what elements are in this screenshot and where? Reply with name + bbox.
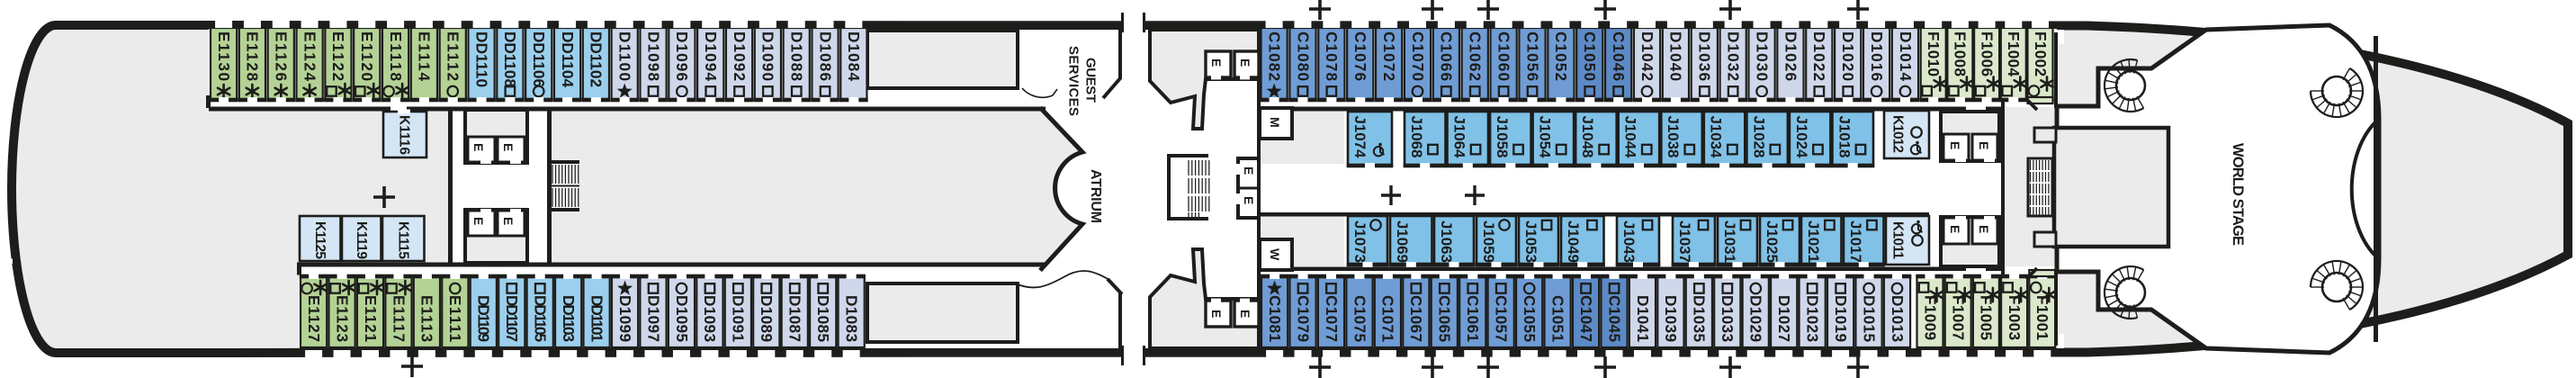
svg-text:D1023: D1023 (1803, 295, 1821, 342)
svg-text:D1087: D1087 (786, 295, 804, 342)
svg-text:C1062: C1062 (1467, 31, 1485, 81)
svg-text:D1039: D1039 (1662, 295, 1680, 342)
svg-text:E: E (1238, 58, 1252, 67)
svg-text:J1031: J1031 (1721, 220, 1738, 263)
svg-text:D1030: D1030 (1753, 31, 1771, 81)
svg-text:E1117: E1117 (390, 295, 408, 342)
svg-text:E1126: E1126 (273, 31, 291, 81)
svg-text:J1049: J1049 (1565, 220, 1582, 263)
svg-text:C1060: C1060 (1494, 31, 1512, 81)
svg-text:D1100: D1100 (616, 31, 634, 81)
svg-text:D1090: D1090 (759, 31, 777, 81)
svg-text:E1111: E1111 (446, 295, 464, 342)
svg-text:E: E (501, 217, 516, 225)
svg-text:DD1108: DD1108 (501, 31, 519, 87)
svg-text:E1121: E1121 (362, 295, 380, 342)
svg-text:DD1101: DD1101 (588, 295, 606, 342)
svg-text:C1066: C1066 (1438, 31, 1456, 81)
svg-text:E: E (1242, 166, 1256, 175)
svg-text:J1063: J1063 (1438, 220, 1455, 263)
svg-text:J1037: J1037 (1676, 220, 1693, 263)
svg-text:J1064: J1064 (1450, 116, 1468, 159)
svg-text:J1034: J1034 (1708, 116, 1725, 159)
svg-text:J1017: J1017 (1847, 220, 1864, 263)
svg-text:C1055: C1055 (1521, 295, 1539, 342)
svg-text:E: E (471, 143, 486, 151)
svg-text:E1114: E1114 (416, 31, 434, 81)
svg-text:DD1103: DD1103 (560, 295, 578, 342)
svg-text:E1124: E1124 (301, 31, 319, 81)
svg-text:E: E (1209, 310, 1224, 318)
svg-text:D1091: D1091 (730, 295, 748, 342)
svg-text:D1033: D1033 (1719, 295, 1737, 342)
svg-text:DD1106: DD1106 (530, 31, 548, 87)
svg-text:D1083: D1083 (842, 295, 860, 342)
svg-text:K1119: K1119 (354, 221, 369, 259)
svg-text:C1077: C1077 (1323, 295, 1341, 342)
svg-text:K1125: K1125 (312, 221, 328, 259)
svg-text:J1021: J1021 (1805, 220, 1822, 263)
svg-text:F1002: F1002 (2032, 31, 2050, 76)
svg-text:E1120: E1120 (358, 31, 376, 81)
svg-text:C1076: C1076 (1351, 31, 1369, 81)
svg-text:D1086: D1086 (816, 31, 834, 81)
svg-text:D1013: D1013 (1889, 295, 1907, 342)
svg-text:W: W (1268, 248, 1282, 261)
svg-text:D1096: D1096 (673, 31, 691, 81)
svg-text:C1082: C1082 (1265, 31, 1283, 81)
svg-text:D1095: D1095 (673, 295, 691, 342)
svg-text:E: E (1209, 58, 1224, 67)
svg-text:D1084: D1084 (845, 31, 863, 81)
svg-text:E1128: E1128 (244, 31, 262, 81)
svg-text:DD1105: DD1105 (532, 295, 550, 342)
svg-text:C1056: C1056 (1523, 31, 1541, 81)
svg-text:M: M (1268, 117, 1282, 128)
svg-text:E: E (1242, 196, 1256, 204)
svg-text:C1081: C1081 (1266, 295, 1284, 342)
svg-text:E1127: E1127 (305, 295, 323, 342)
svg-text:F1006: F1006 (1978, 31, 1996, 76)
svg-text:K1116: K1116 (396, 115, 411, 155)
svg-text:SERVICES: SERVICES (1066, 46, 1082, 116)
svg-text:D1027: D1027 (1775, 295, 1793, 342)
svg-text:E: E (1238, 310, 1252, 318)
svg-text:D1032: D1032 (1724, 31, 1742, 81)
svg-text:J1025: J1025 (1764, 220, 1781, 263)
svg-text:DD1104: DD1104 (559, 31, 577, 87)
svg-text:C1057: C1057 (1493, 295, 1511, 342)
svg-text:J1074: J1074 (1351, 116, 1369, 159)
svg-text:J1069: J1069 (1394, 220, 1411, 263)
svg-text:D1089: D1089 (758, 295, 776, 342)
svg-text:K1012: K1012 (1889, 115, 1905, 153)
svg-text:J1043: J1043 (1620, 220, 1638, 263)
svg-text:J1059: J1059 (1480, 220, 1497, 263)
svg-text:D1093: D1093 (701, 295, 719, 342)
svg-text:E1118: E1118 (387, 31, 405, 81)
svg-text:K1011: K1011 (1889, 221, 1905, 259)
svg-text:J1024: J1024 (1793, 116, 1810, 159)
svg-text:F1008: F1008 (1952, 31, 1970, 76)
svg-text:D1097: D1097 (644, 295, 662, 342)
svg-text:D1040: D1040 (1667, 31, 1685, 81)
svg-text:J1048: J1048 (1579, 116, 1596, 158)
svg-text:D1019: D1019 (1832, 295, 1850, 342)
svg-text:C1046: C1046 (1610, 31, 1628, 81)
svg-text:E1123: E1123 (333, 295, 351, 342)
svg-text:D1035: D1035 (1691, 295, 1709, 342)
svg-text:DD1109: DD1109 (475, 295, 493, 342)
svg-text:C1080: C1080 (1294, 31, 1312, 81)
svg-text:C1078: C1078 (1323, 31, 1341, 81)
svg-text:D1036: D1036 (1696, 31, 1714, 81)
svg-text:D1098: D1098 (644, 31, 662, 81)
svg-text:WORLD STAGE: WORLD STAGE (2230, 143, 2246, 246)
svg-text:J1038: J1038 (1665, 116, 1682, 158)
svg-text:C1079: C1079 (1294, 295, 1312, 342)
svg-text:D1041: D1041 (1634, 295, 1652, 342)
svg-text:E1130: E1130 (215, 31, 233, 81)
svg-text:D1016: D1016 (1868, 31, 1886, 81)
svg-text:DD1110: DD1110 (472, 31, 490, 87)
svg-text:E1112: E1112 (444, 31, 462, 81)
svg-text:C1052: C1052 (1552, 31, 1570, 81)
svg-text:DD1107: DD1107 (503, 295, 521, 342)
svg-text:K1115: K1115 (396, 221, 411, 259)
svg-text:C1072: C1072 (1380, 31, 1398, 81)
svg-text:J1018: J1018 (1836, 116, 1853, 158)
svg-text:J1054: J1054 (1537, 116, 1554, 159)
svg-text:E: E (1977, 141, 1991, 149)
svg-text:C1075: C1075 (1351, 295, 1369, 342)
svg-text:D1094: D1094 (702, 31, 720, 81)
svg-text:E1122: E1122 (329, 31, 347, 81)
svg-text:E: E (471, 217, 486, 225)
svg-text:GUEST: GUEST (1083, 58, 1099, 103)
svg-text:D1026: D1026 (1782, 31, 1800, 81)
svg-text:E: E (501, 143, 516, 151)
svg-text:D1099: D1099 (616, 295, 634, 342)
svg-text:F1004: F1004 (2005, 31, 2023, 76)
svg-text:C1045: C1045 (1605, 295, 1623, 342)
svg-text:D1088: D1088 (788, 31, 806, 81)
svg-text:F1010: F1010 (1925, 31, 1943, 76)
svg-text:J1044: J1044 (1622, 116, 1639, 159)
svg-text:D1014: D1014 (1897, 31, 1915, 81)
svg-text:J1073: J1073 (1351, 220, 1369, 263)
svg-text:D1020: D1020 (1839, 31, 1857, 81)
svg-text:D1042: D1042 (1638, 31, 1656, 81)
svg-text:C1070: C1070 (1409, 31, 1427, 81)
svg-text:E: E (1948, 141, 1962, 149)
svg-text:D1015: D1015 (1860, 295, 1878, 342)
svg-text:J1058: J1058 (1494, 116, 1511, 158)
svg-text:C1071: C1071 (1379, 295, 1397, 342)
svg-text:E1113: E1113 (418, 295, 436, 342)
svg-text:D1085: D1085 (814, 295, 832, 342)
svg-text:C1065: C1065 (1436, 295, 1454, 342)
svg-text:ATRIUM: ATRIUM (1088, 169, 1103, 223)
svg-text:C1050: C1050 (1581, 31, 1599, 81)
svg-text:J1053: J1053 (1522, 220, 1539, 263)
svg-text:C1067: C1067 (1407, 295, 1425, 342)
svg-text:C1061: C1061 (1464, 295, 1482, 342)
svg-text:D1092: D1092 (731, 31, 749, 81)
svg-text:J1028: J1028 (1750, 116, 1767, 158)
svg-text:DD1102: DD1102 (588, 31, 606, 87)
svg-text:E: E (1948, 225, 1962, 233)
svg-text:D1029: D1029 (1747, 295, 1765, 342)
svg-text:C1047: C1047 (1577, 295, 1595, 342)
svg-text:E: E (1977, 225, 1991, 233)
svg-text:J1068: J1068 (1408, 116, 1425, 158)
svg-text:C1051: C1051 (1548, 295, 1566, 342)
svg-text:D1022: D1022 (1810, 31, 1828, 81)
